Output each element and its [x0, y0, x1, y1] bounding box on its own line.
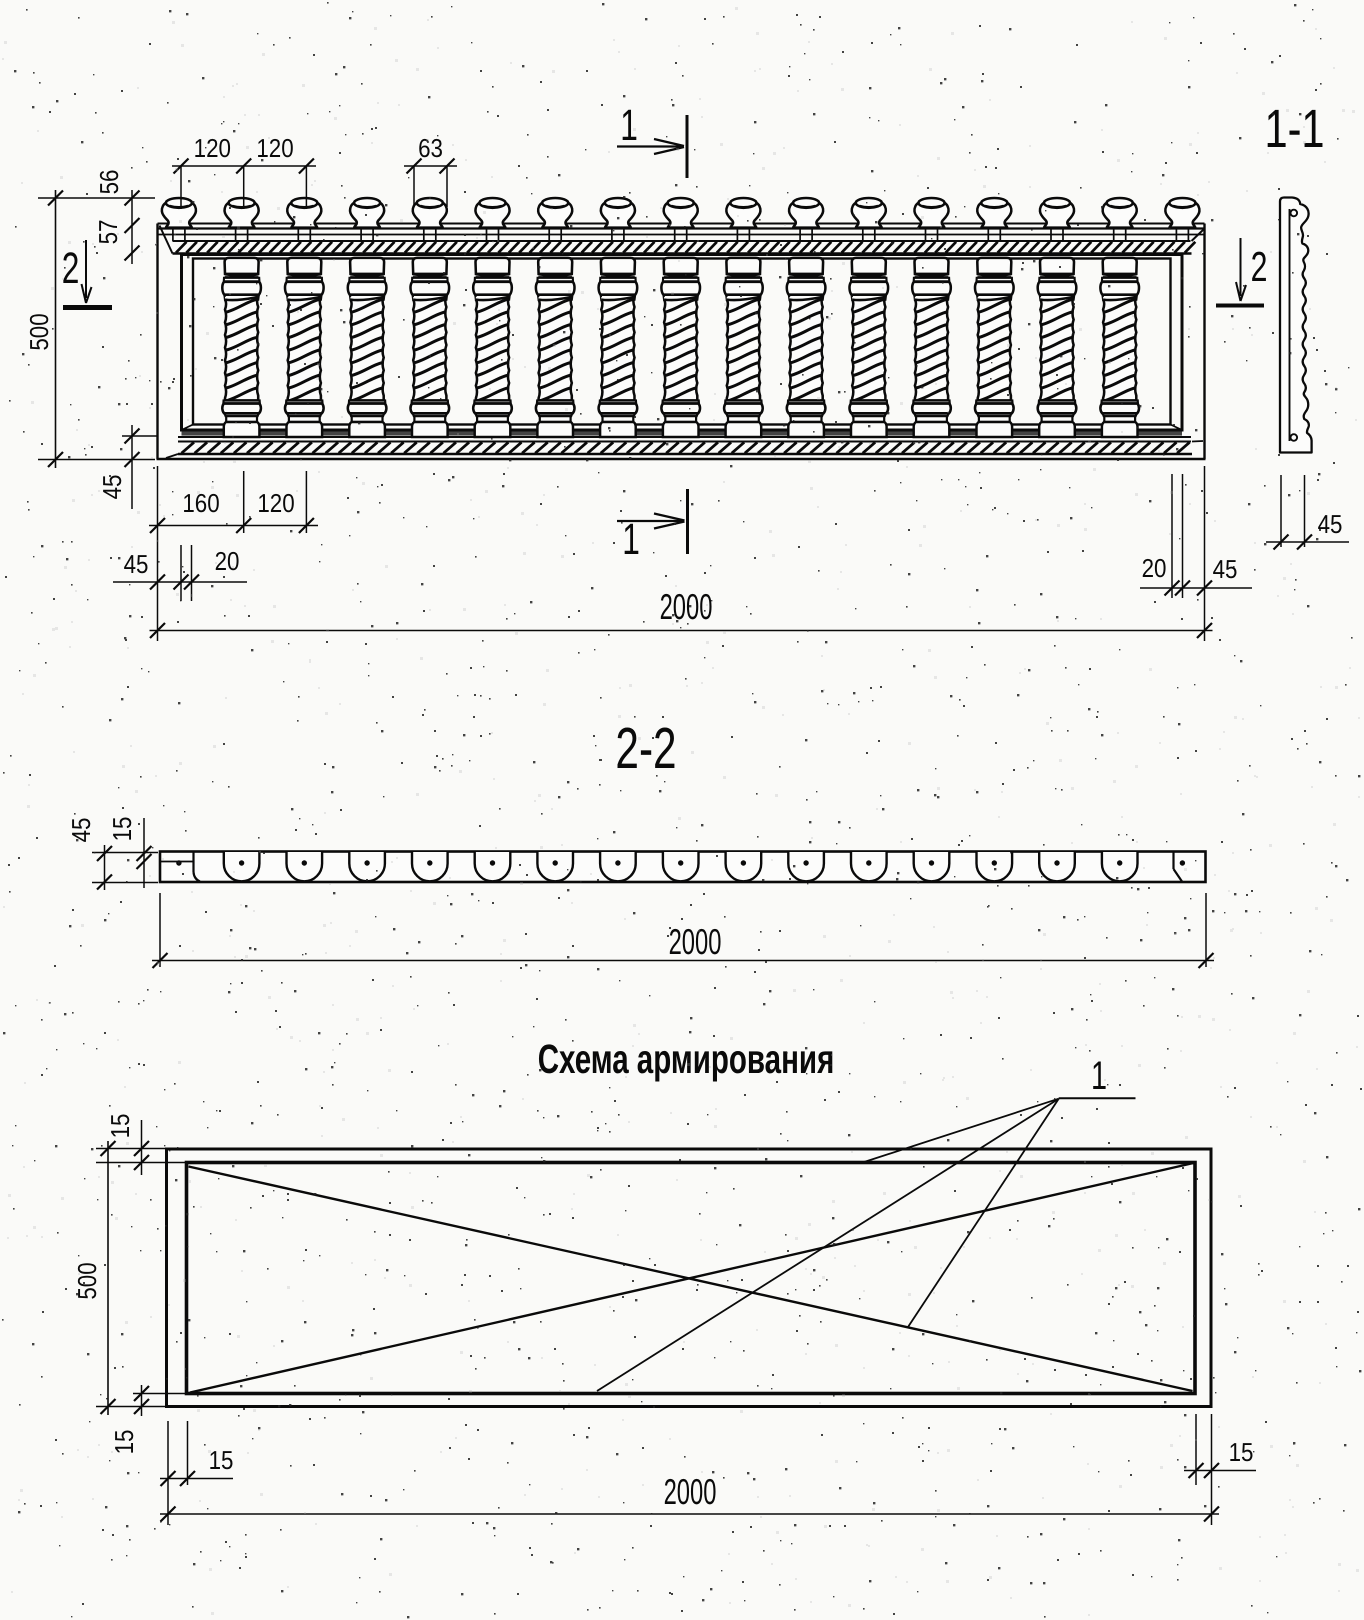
svg-text:1: 1 — [620, 101, 638, 150]
svg-text:2000: 2000 — [664, 1471, 717, 1512]
svg-text:160: 160 — [182, 488, 219, 518]
svg-text:2000: 2000 — [660, 586, 713, 627]
svg-text:15: 15 — [107, 817, 137, 842]
svg-text:15: 15 — [209, 1445, 234, 1475]
svg-text:15: 15 — [1229, 1437, 1254, 1467]
svg-text:120: 120 — [194, 133, 231, 163]
svg-text:Схема армирования: Схема армирования — [538, 1036, 835, 1082]
svg-text:56: 56 — [94, 170, 124, 195]
svg-text:15: 15 — [109, 1430, 139, 1455]
svg-text:1: 1 — [1091, 1054, 1107, 1098]
svg-text:20: 20 — [1142, 553, 1167, 583]
svg-text:57: 57 — [93, 220, 123, 245]
svg-text:1: 1 — [622, 515, 640, 564]
svg-text:120: 120 — [256, 133, 293, 163]
svg-text:2000: 2000 — [669, 921, 722, 962]
svg-text:2-2: 2-2 — [615, 716, 676, 781]
svg-text:20: 20 — [215, 546, 240, 576]
svg-text:2: 2 — [1251, 243, 1268, 290]
svg-text:15: 15 — [105, 1114, 135, 1139]
svg-text:45: 45 — [97, 475, 127, 500]
svg-text:45: 45 — [66, 818, 96, 843]
svg-text:63: 63 — [418, 133, 443, 163]
svg-text:120: 120 — [257, 488, 294, 518]
svg-text:45: 45 — [1318, 509, 1343, 539]
svg-text:45: 45 — [124, 549, 149, 579]
svg-text:45: 45 — [1213, 554, 1238, 584]
svg-text:1-1: 1-1 — [1264, 99, 1324, 159]
svg-text:500: 500 — [24, 313, 54, 350]
